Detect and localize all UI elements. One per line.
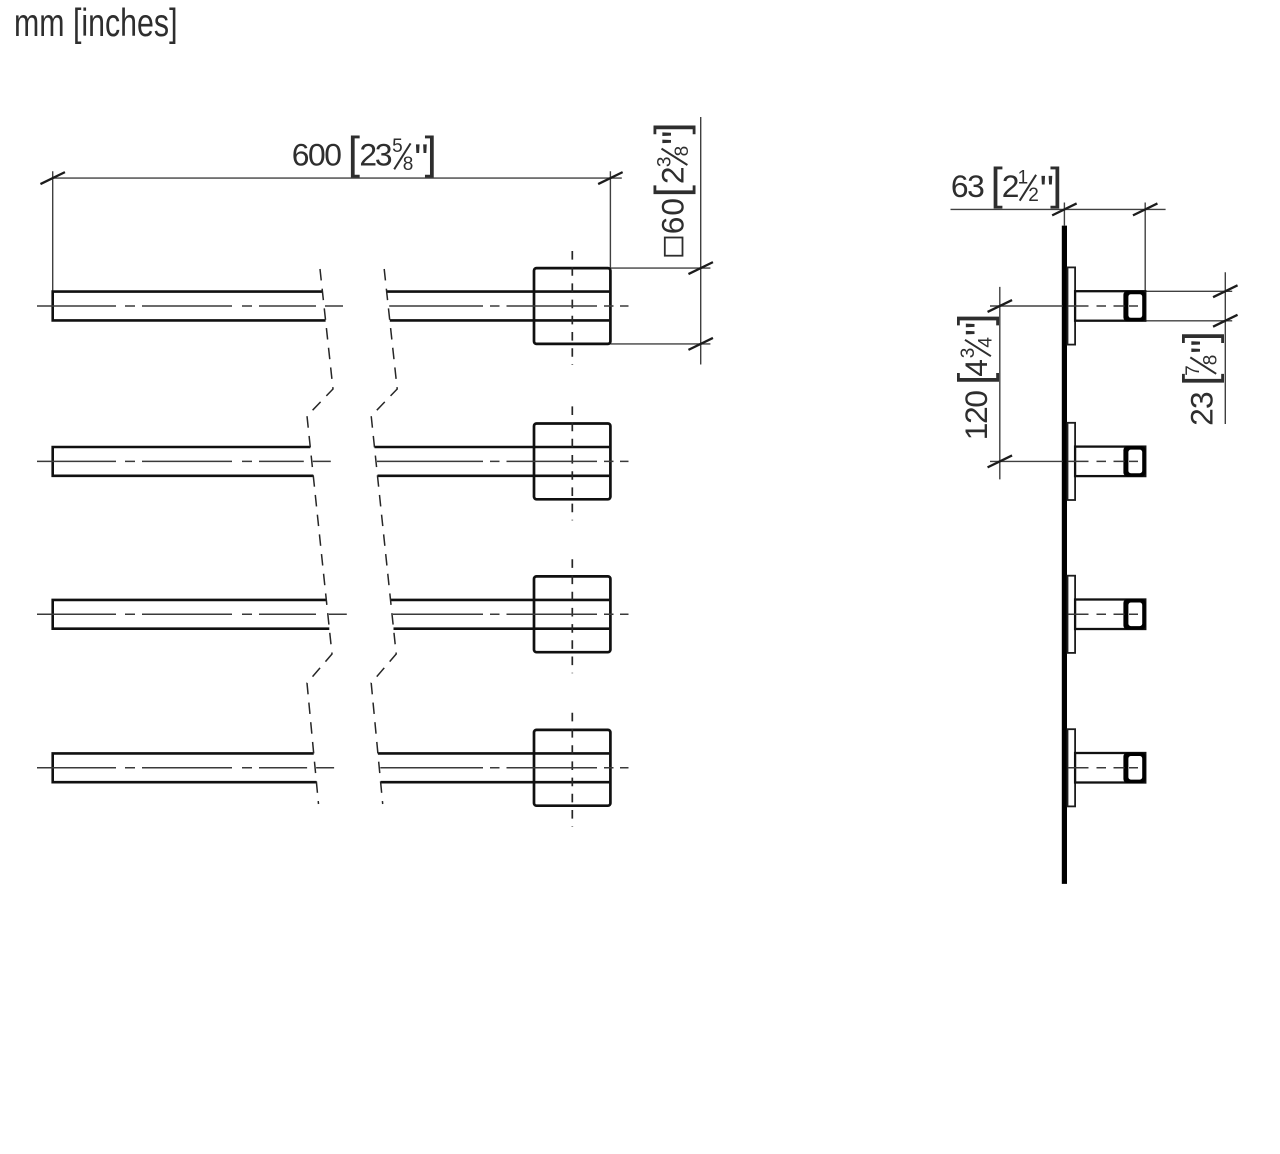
svg-text:8: 8	[1201, 355, 1222, 366]
svg-text:]: ]	[950, 314, 999, 326]
svg-text:[: [	[647, 185, 696, 197]
svg-text:4: 4	[958, 360, 994, 377]
svg-text:7: 7	[1183, 365, 1204, 376]
svg-text:3: 3	[958, 348, 979, 359]
svg-text:]: ]	[1176, 331, 1225, 343]
svg-text:2: 2	[655, 167, 691, 184]
svg-text:8: 8	[672, 146, 693, 157]
svg-text:5: 5	[392, 136, 403, 157]
svg-text:63: 63	[951, 168, 984, 204]
svg-text:]: ]	[647, 122, 696, 134]
svg-text:120: 120	[958, 391, 994, 441]
svg-text:23: 23	[1184, 392, 1220, 426]
svg-text:[: [	[348, 129, 360, 178]
svg-text:8: 8	[403, 154, 414, 175]
svg-text:1: 1	[1018, 168, 1029, 189]
svg-text:]: ]	[1050, 160, 1062, 209]
svg-text:2: 2	[1002, 168, 1019, 204]
svg-text:2: 2	[1028, 185, 1039, 206]
svg-text:]: ]	[425, 129, 437, 178]
svg-text:3: 3	[654, 157, 675, 168]
svg-text:600: 600	[292, 137, 342, 173]
svg-text:4: 4	[975, 337, 996, 348]
svg-text:60: 60	[655, 197, 691, 234]
svg-text:mm [inches]: mm [inches]	[14, 2, 178, 45]
svg-text:23: 23	[359, 137, 391, 173]
